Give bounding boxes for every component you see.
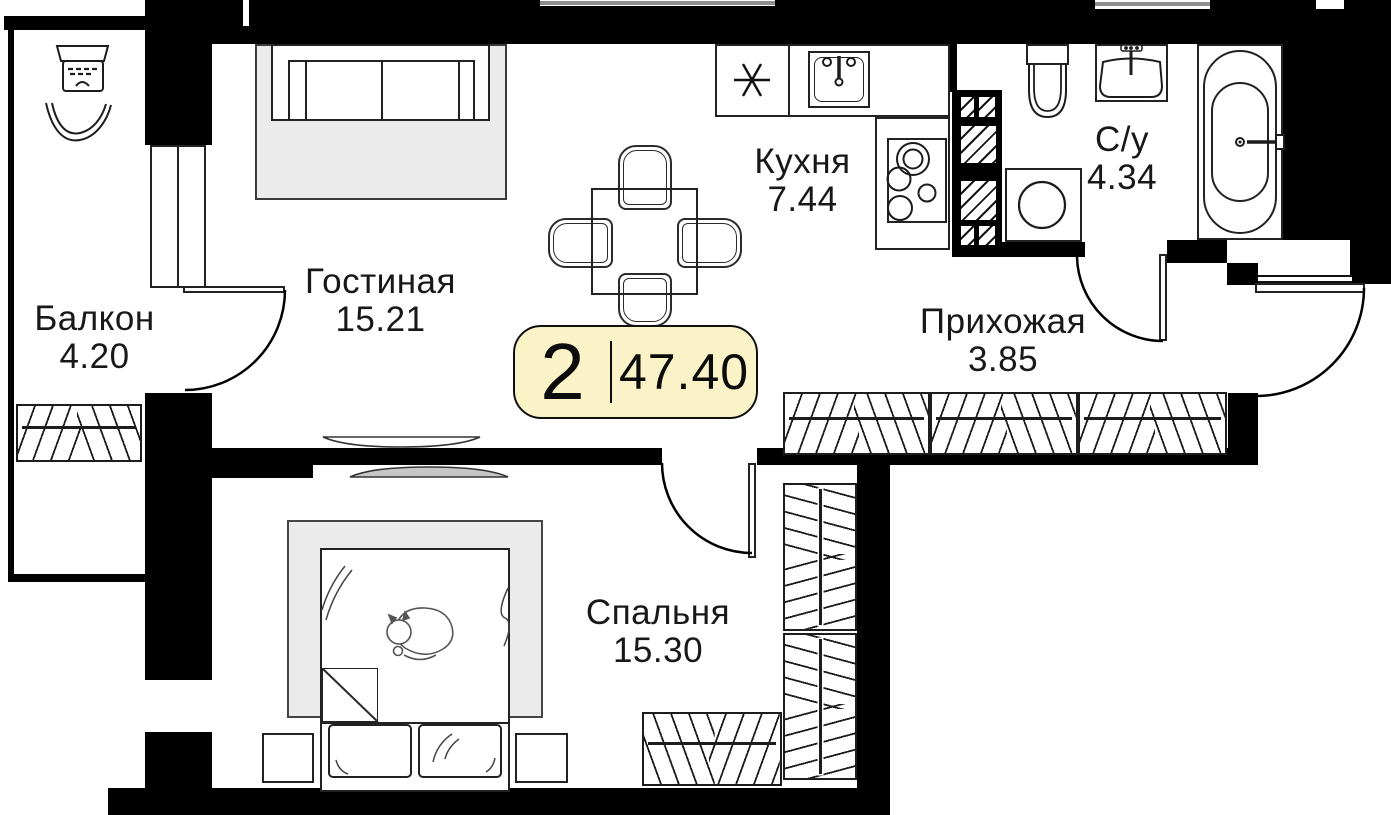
toilet-icon <box>1029 65 1066 117</box>
room-label-kitchen: Кухня 7.44 <box>715 143 890 219</box>
wardrobe-icon <box>783 392 930 455</box>
wardrobe-icon <box>1078 392 1227 455</box>
bedroom-door-leaf <box>748 463 756 558</box>
floor-plan: Балкон 4.20 Гостиная 15.21 Кухня 7.44 С/… <box>0 0 1391 815</box>
sofa-armrest-line <box>305 61 307 120</box>
wall-living-bedroom <box>212 448 662 465</box>
kitchen-sink-bowl <box>814 57 864 102</box>
wardrobe-icon <box>16 404 142 462</box>
shaft-hatch-cell <box>979 226 995 245</box>
wall-balcony-bottom <box>8 574 148 582</box>
room-area: 7.44 <box>715 181 890 219</box>
room-label-balcony: Балкон 4.20 <box>12 300 177 376</box>
wall-bottom <box>108 788 890 815</box>
room-name: Спальня <box>568 594 748 632</box>
wardrobe-icon <box>783 633 857 780</box>
wardrobe-icon <box>642 712 782 786</box>
shaft-hatch-cell <box>961 97 974 117</box>
wardrobe-icon <box>930 392 1078 455</box>
shaft-hatch-cell <box>961 126 996 163</box>
shaft-hatch-cell <box>961 226 974 245</box>
pillow <box>328 724 412 778</box>
window-bath-top <box>1095 2 1210 6</box>
wall-bedroom-right <box>857 448 890 788</box>
entry-door-leaf <box>1255 283 1365 293</box>
sofa-armrest-line <box>458 61 460 120</box>
ac-hose <box>46 103 111 140</box>
bathtub-inner <box>1211 82 1269 202</box>
wall-top-slit <box>243 0 249 26</box>
room-area: 4.20 <box>12 338 177 376</box>
wall-shaft-thin <box>950 44 957 92</box>
pillow <box>418 724 502 778</box>
wall-top-notch-right <box>1316 0 1344 9</box>
wall-entry-right <box>1350 240 1391 284</box>
badge-total-area: 47.40 <box>612 343 756 401</box>
wall-column-notch <box>145 680 212 732</box>
wall-entry-stub-below <box>1228 393 1258 448</box>
wall-balcony-left <box>8 16 14 582</box>
wall-balcony-top <box>4 16 145 30</box>
entry-wall-face <box>1258 275 1352 283</box>
blanket-fold <box>322 668 378 722</box>
bath-sink-icon <box>1095 44 1168 102</box>
wall-entry-step <box>1227 263 1258 285</box>
room-label-living: Гостиная 15.21 <box>268 263 493 339</box>
wall-column-upper <box>145 44 212 145</box>
room-name: Прихожая <box>878 303 1128 341</box>
toilet-tank <box>1026 44 1069 65</box>
shaft-hatch-cell <box>961 181 996 220</box>
shaft-hatch-cell <box>979 97 995 117</box>
room-label-bedroom: Спальня 15.30 <box>568 594 748 670</box>
nightstand <box>262 733 314 783</box>
room-area: 15.21 <box>268 301 493 339</box>
wall-top-edge-block <box>160 0 430 12</box>
room-area: 15.30 <box>568 632 748 670</box>
room-name: Балкон <box>12 300 177 338</box>
stove-icon <box>887 138 947 223</box>
room-label-hallway: Прихожая 3.85 <box>878 303 1128 379</box>
dining-table-icon <box>591 188 698 295</box>
room-name: С/у <box>1057 121 1187 159</box>
sofa-cushion-divider <box>381 61 383 120</box>
room-name: Гостиная <box>268 263 493 301</box>
wall-bath-bottom-left <box>1002 242 1085 257</box>
nightstand <box>515 733 568 783</box>
room-label-bathroom: С/у 4.34 <box>1057 121 1187 197</box>
wall-bath-bottom-right <box>1167 240 1227 263</box>
wardrobe-icon <box>783 483 857 631</box>
room-name: Кухня <box>715 143 890 181</box>
room-area: 4.34 <box>1057 159 1187 197</box>
ac-unit-icon <box>57 46 108 91</box>
room-area: 3.85 <box>878 341 1128 379</box>
badge-room-count: 2 <box>515 332 610 412</box>
kitchen-counter-divider <box>788 44 790 117</box>
bathroom-door-leaf <box>1159 254 1167 341</box>
window-living-top <box>540 1 775 5</box>
wall-right-of-tub <box>1283 44 1391 240</box>
apartment-badge: 2 47.40 <box>513 325 758 419</box>
wall-living-bedroom-step <box>212 465 313 478</box>
window-mullion <box>177 147 179 286</box>
